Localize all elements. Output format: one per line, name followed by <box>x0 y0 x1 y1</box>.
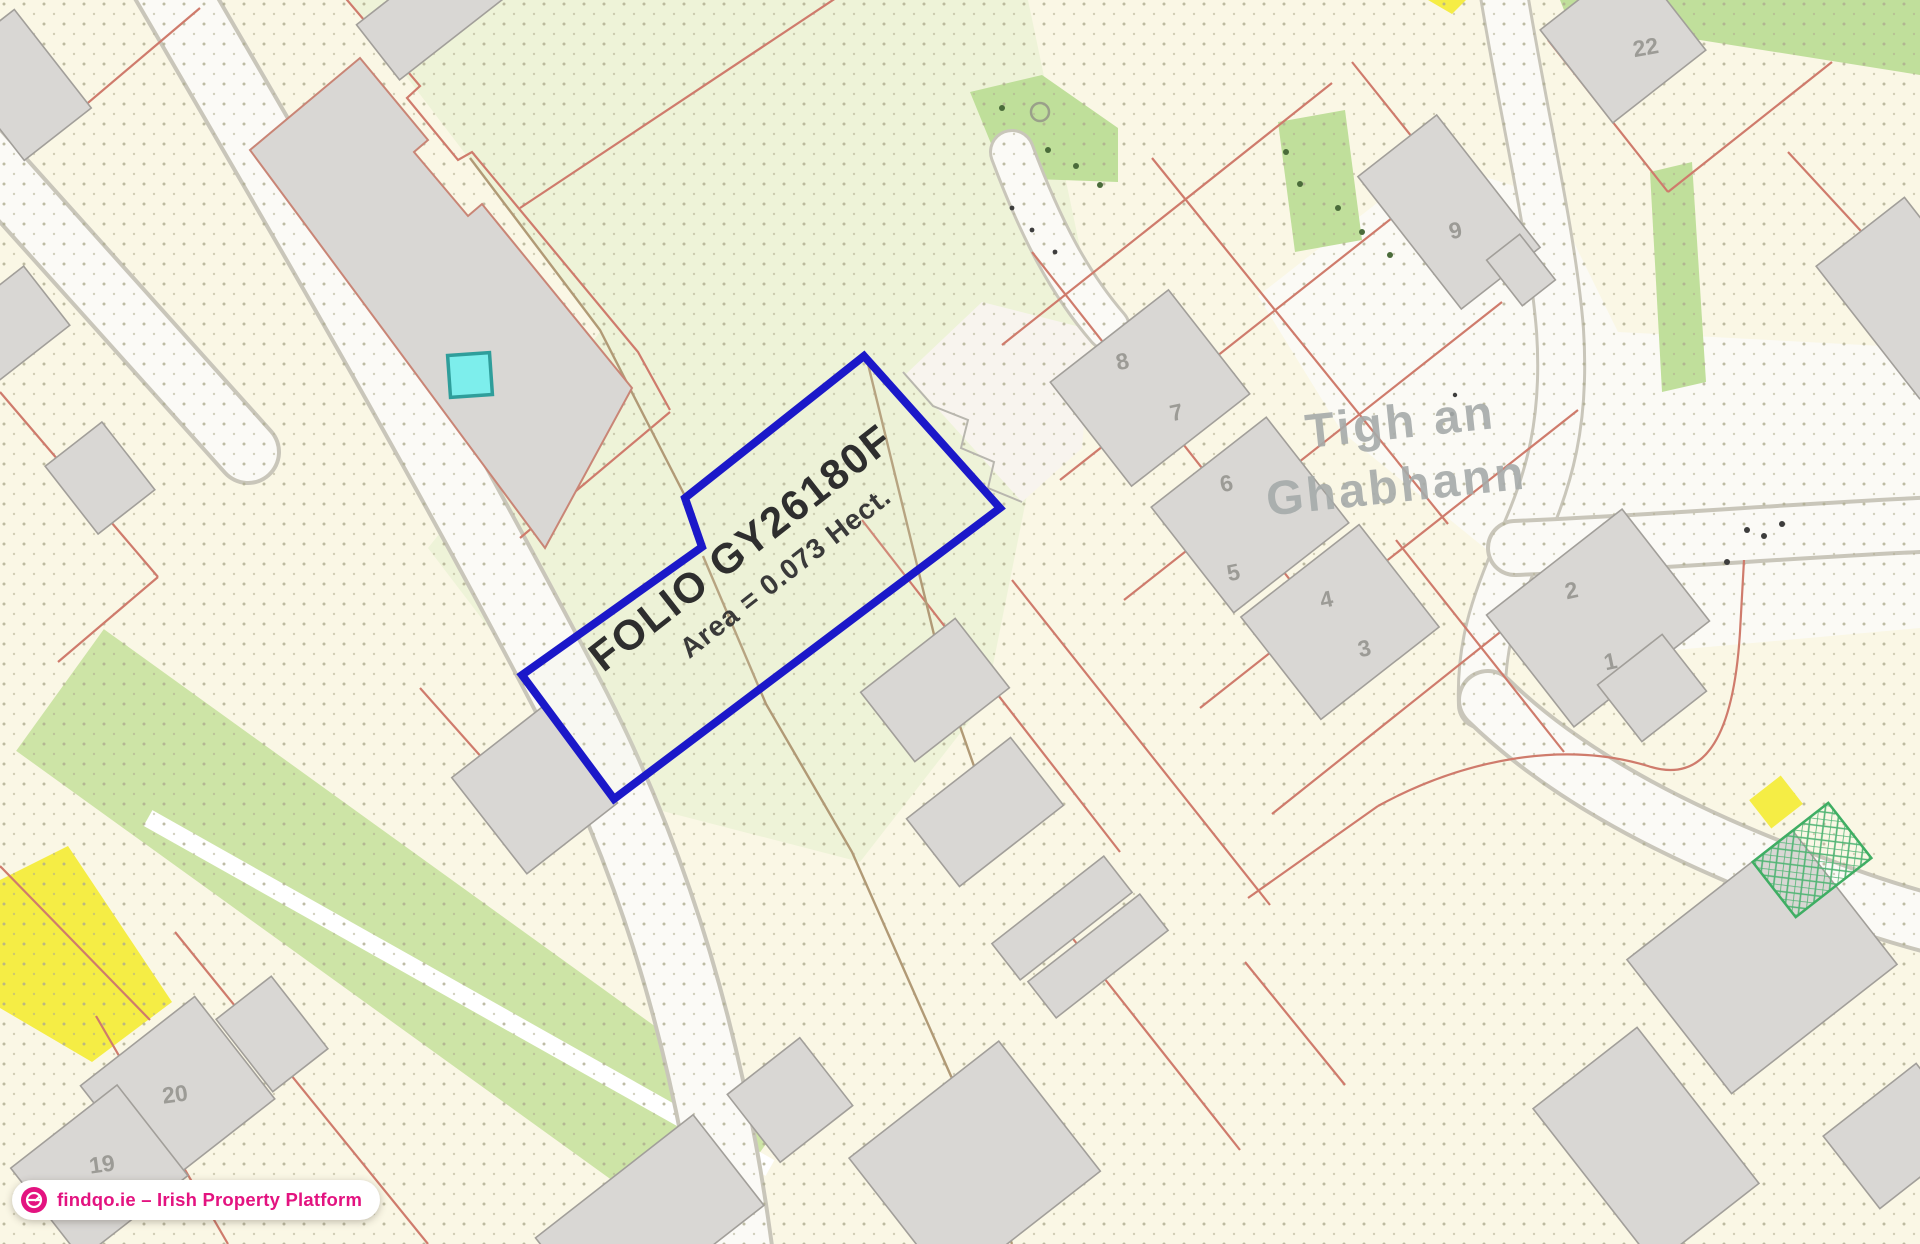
land-registry-map-page: 22 9 8 7 6 5 4 3 2 1 20 19 Tigh an Ghabh… <box>0 0 1920 1244</box>
badge-label: findqo.ie – Irish Property Platform <box>57 1189 362 1211</box>
cyan-highlight-square <box>448 353 493 398</box>
plot-number-label: 19 <box>87 1149 116 1178</box>
plot-number-label: 22 <box>1631 32 1661 62</box>
findqo-badge[interactable]: findqo.ie – Irish Property Platform <box>12 1180 380 1220</box>
plot-number-label: 20 <box>160 1079 189 1108</box>
globe-icon <box>20 1186 48 1214</box>
land-registry-map: 22 9 8 7 6 5 4 3 2 1 20 19 Tigh an Ghabh… <box>0 0 1920 1244</box>
